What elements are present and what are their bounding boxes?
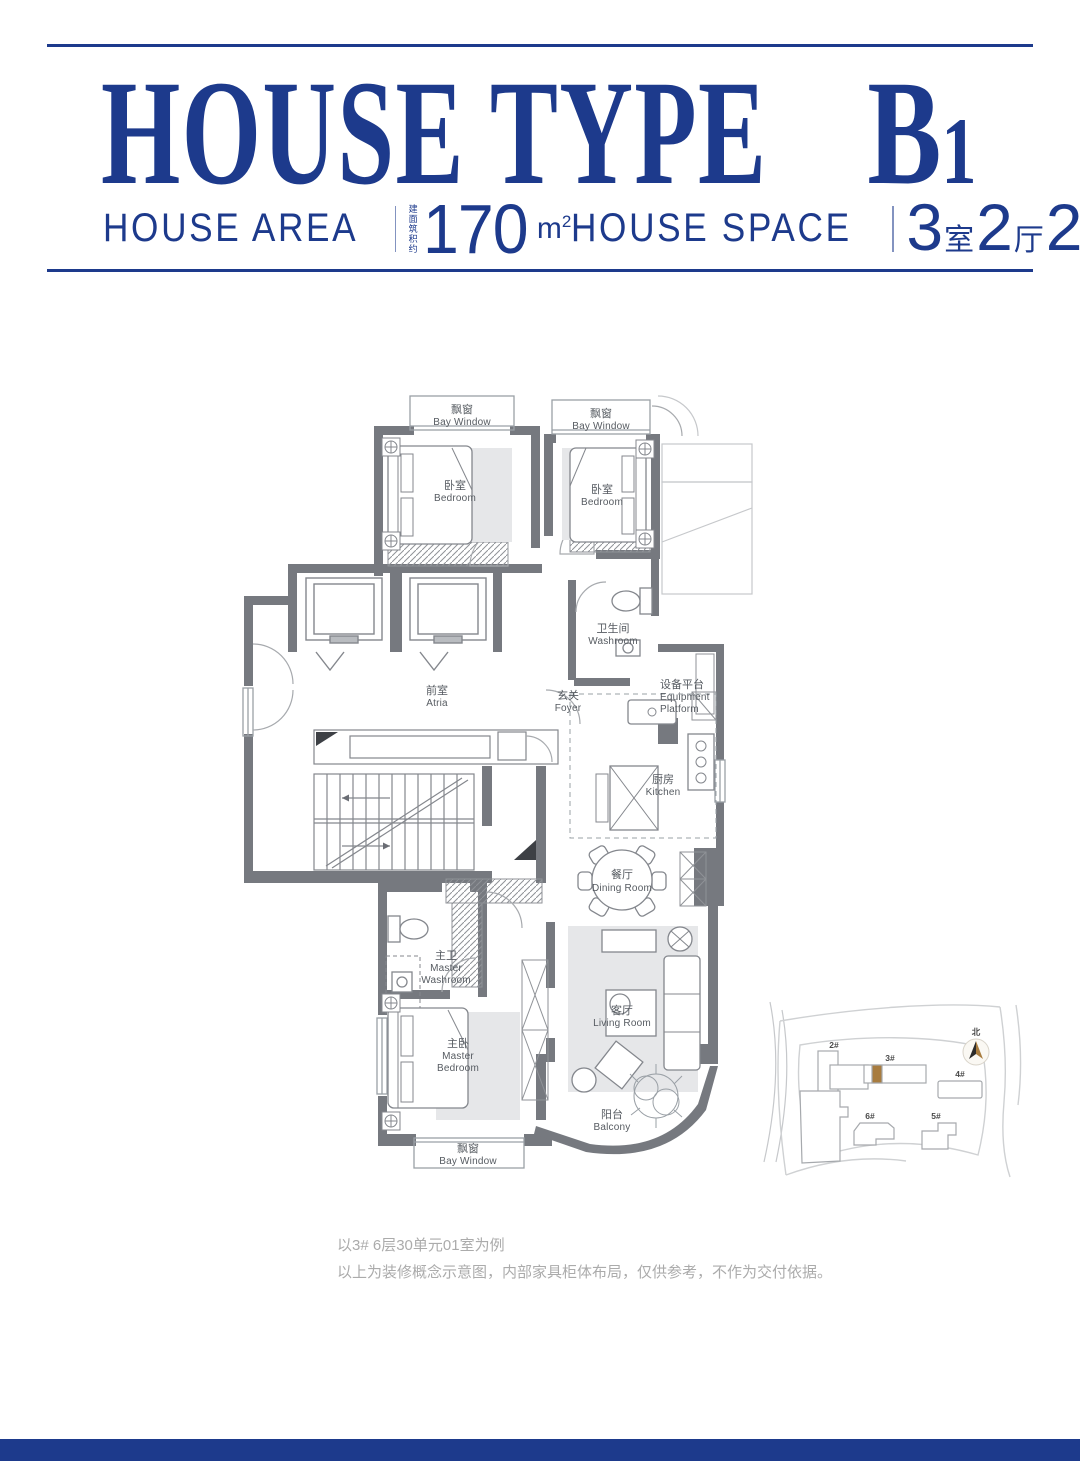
floor-plan: 飘窗 Bay Window 飘窗 Bay Window 卧室 Bedroom 卧… xyxy=(230,382,800,1172)
bay-window-label-en: Bay Window xyxy=(433,417,491,428)
master-bedroom-label-cn: 主卧 xyxy=(447,1037,469,1050)
footnote-line: 以3# 6层30单元01室为例 xyxy=(337,1232,832,1259)
master-washroom-label-en1: Master xyxy=(430,963,462,974)
dining-label-cn: 餐厅 xyxy=(611,867,633,881)
building-label-3: 3# xyxy=(885,1053,895,1063)
space-value: 3 室 2 厅 2 卫 xyxy=(906,198,1080,259)
equipment-platform-label: 设备平台 Equipment Platform xyxy=(660,677,710,715)
bay-window-label-cn: 飘窗 xyxy=(590,406,612,420)
north-label: 北 xyxy=(972,1027,981,1037)
staircase xyxy=(314,730,558,870)
footnote-line: 以上为装修概念示意图，内部家具柜体布局，仅供参考，不作为交付依据。 xyxy=(337,1259,832,1286)
balcony-label-en: Balcony xyxy=(594,1122,631,1133)
washroom-label-cn: 卫生间 xyxy=(597,621,630,635)
bay-window-label-cn: 飘窗 xyxy=(457,1141,479,1155)
site-buildings xyxy=(800,1051,982,1163)
kitchen-fixtures xyxy=(570,694,716,838)
master-bedroom-label-en1: Master xyxy=(442,1051,474,1062)
area-note-row: 约 xyxy=(408,244,419,254)
space-num: 3 xyxy=(906,198,942,256)
atria-label-cn: 前室 xyxy=(426,683,448,697)
footnotes: 以3# 6层30单元01室为例 以上为装修概念示意图，内部家具柜体布局，仅供参考… xyxy=(337,1232,832,1286)
space-cn: 室 xyxy=(944,215,974,259)
bay-window-label-en: Bay Window xyxy=(439,1156,497,1167)
page-title: HOUSE TYPE xyxy=(101,58,767,208)
master-bedroom-furniture xyxy=(382,994,520,1130)
space-num: 2 xyxy=(976,198,1012,256)
master-bedroom-label-en2: Bedroom xyxy=(437,1063,479,1074)
bay-window-label-en: Bay Window xyxy=(572,421,630,432)
footer-bar xyxy=(0,1439,1080,1461)
house-space-label: HOUSE SPACE xyxy=(571,206,852,251)
highlighted-building-section xyxy=(872,1065,882,1083)
atria-label-en: Atria xyxy=(426,698,448,709)
washroom-label-en: Washroom xyxy=(588,636,638,647)
area-unit-base: m xyxy=(537,212,562,245)
bay-window-label-cn: 飘窗 xyxy=(451,402,473,416)
equipment-label-en1: Equipment xyxy=(660,692,710,703)
bedroom-label-cn: 卧室 xyxy=(444,478,466,492)
divider xyxy=(892,206,894,252)
area-note-row: 建面 xyxy=(408,204,419,224)
top-rule xyxy=(47,44,1033,47)
area-unit: m2 xyxy=(537,212,571,246)
dining-set xyxy=(578,844,666,917)
equipment-label-cn: 设备平台 xyxy=(660,677,704,691)
subheader: HOUSE AREA 建面 筑积 约 170 m2 HOUSE SPACE 3 … xyxy=(103,198,975,262)
bedroom-label-en: Bedroom xyxy=(434,493,476,504)
house-space-metric: HOUSE SPACE 3 室 2 厅 2 卫 xyxy=(571,198,1080,259)
balcony-label-cn: 阳台 xyxy=(601,1107,623,1121)
house-type-page: HOUSE TYPE B1 HOUSE AREA 建面 筑积 约 170 m2 … xyxy=(0,0,1080,1461)
living-label-en: Living Room xyxy=(593,1018,651,1029)
living-label-cn: 客厅 xyxy=(611,1003,633,1017)
equipment-label-en2: Platform xyxy=(660,704,699,715)
master-washroom-label-cn: 主卫 xyxy=(435,949,457,962)
dining-label-en: Dining Room xyxy=(592,883,652,894)
bedroom-label-en: Bedroom xyxy=(581,497,623,508)
bedroom-label-cn: 卧室 xyxy=(591,482,613,496)
building-label-4: 4# xyxy=(955,1069,965,1079)
living-room-furniture xyxy=(568,926,700,1092)
mid-rule xyxy=(47,269,1033,272)
kitchen-label-cn: 厨房 xyxy=(652,773,674,786)
building-label-6: 6# xyxy=(865,1111,875,1121)
master-washroom-label-en2: Washroom xyxy=(421,975,471,986)
divider xyxy=(395,206,396,252)
building-label-2: 2# xyxy=(829,1040,839,1050)
foyer-label-cn: 玄关 xyxy=(557,688,579,702)
area-note-row: 筑积 xyxy=(408,224,419,244)
building-label-5: 5# xyxy=(931,1111,941,1121)
north-compass: 北 xyxy=(963,1027,989,1065)
house-area-label: HOUSE AREA xyxy=(103,206,358,251)
kitchen-label-en: Kitchen xyxy=(646,787,681,798)
foyer-label-en: Foyer xyxy=(555,703,582,714)
area-value: 170 xyxy=(423,199,528,259)
unit-number: 1 xyxy=(942,98,977,204)
house-area-metric: HOUSE AREA 建面 筑积 约 170 m2 xyxy=(103,199,571,259)
site-plan: 2# 3# 4# 5# 6# 北 xyxy=(770,995,1030,1180)
area-note: 建面 筑积 约 xyxy=(408,204,419,254)
space-num: 2 xyxy=(1046,198,1080,256)
area-unit-sup: 2 xyxy=(562,212,571,231)
space-cn: 厅 xyxy=(1014,215,1044,259)
unit-code: B1 xyxy=(868,58,977,208)
